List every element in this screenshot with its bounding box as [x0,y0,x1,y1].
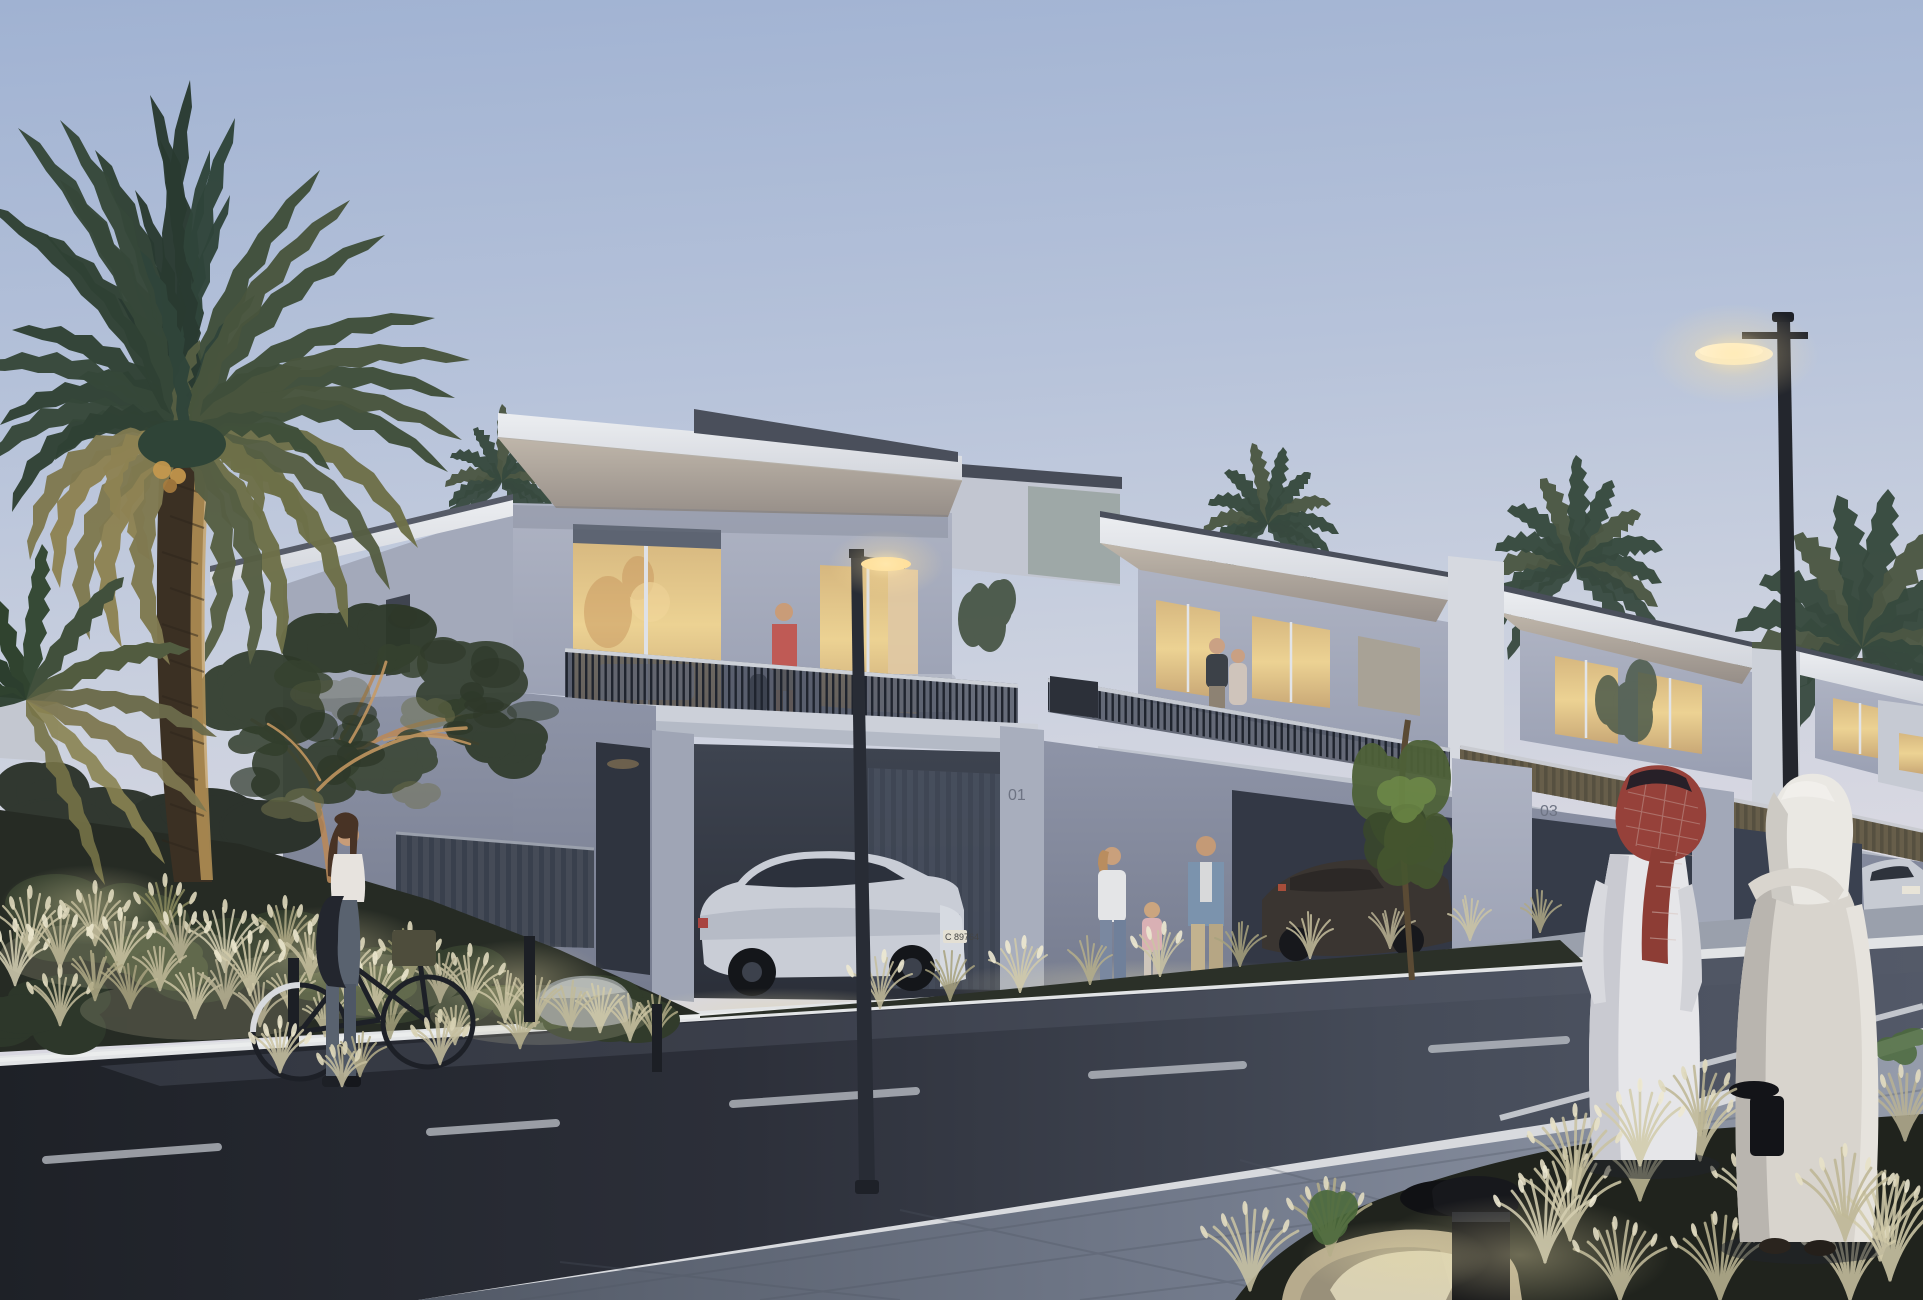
svg-text:C 89764: C 89764 [945,932,979,942]
svg-text:01: 01 [1008,787,1026,804]
svg-text:03: 03 [1540,803,1558,820]
